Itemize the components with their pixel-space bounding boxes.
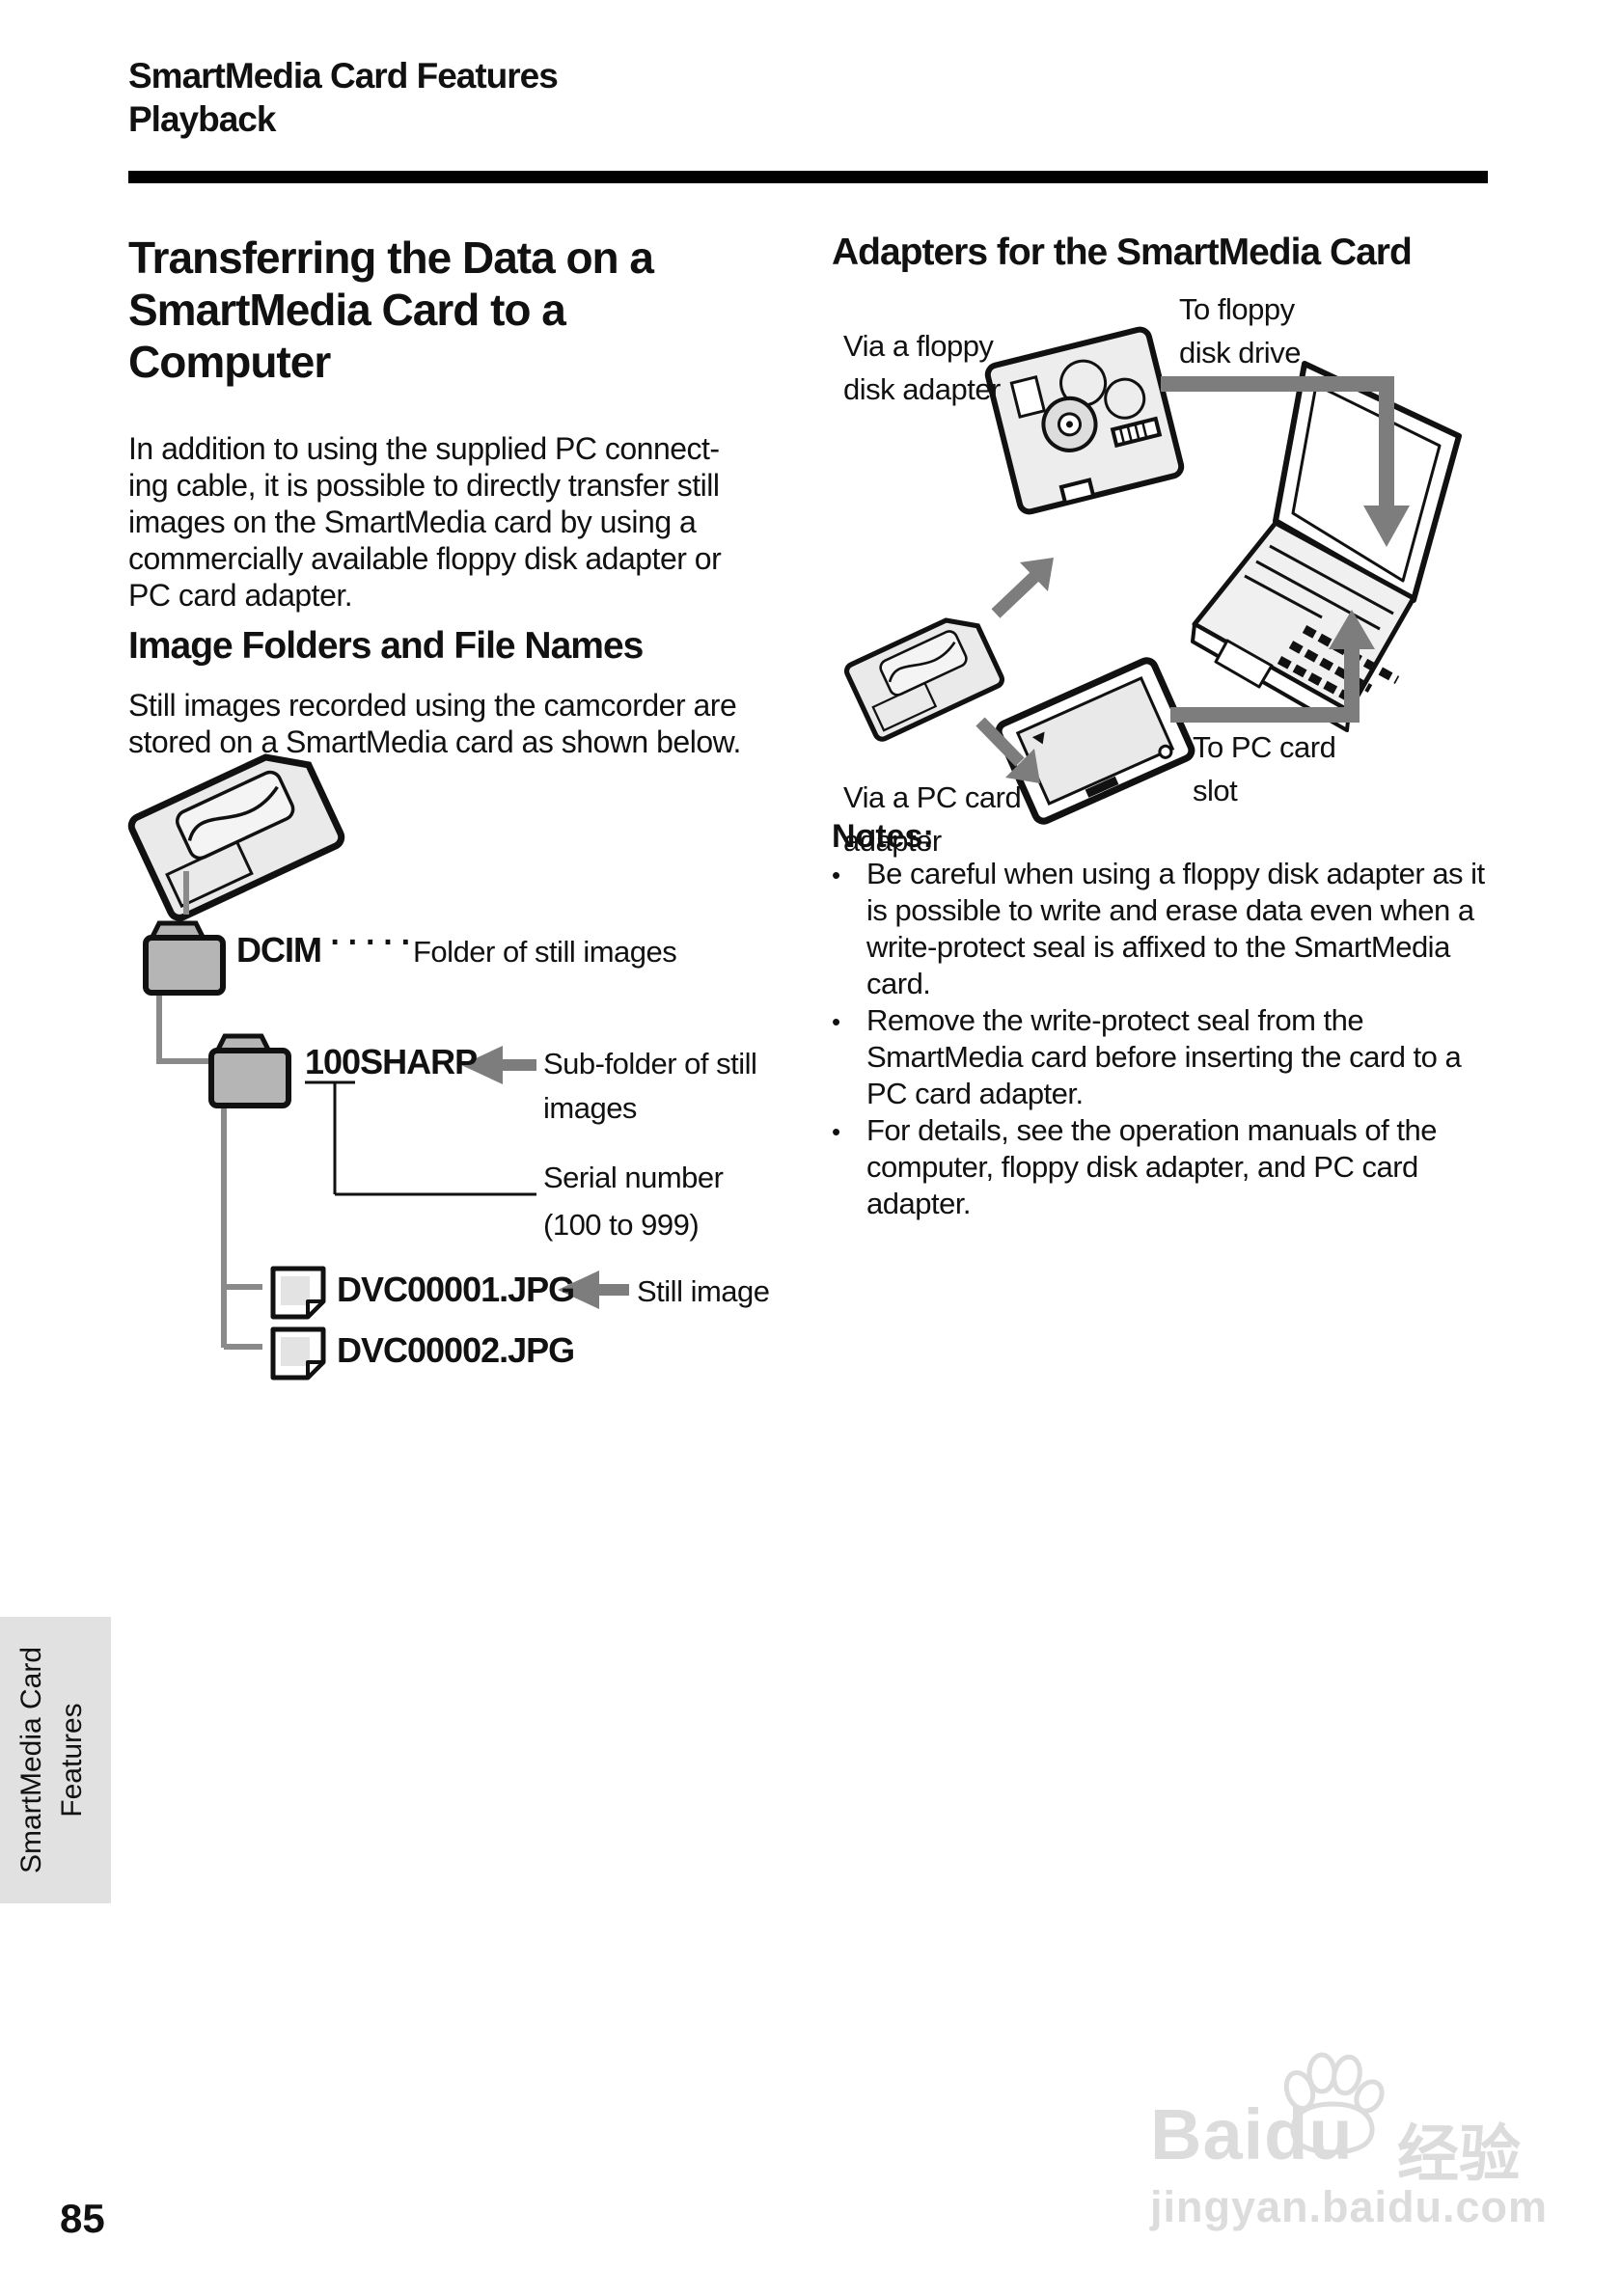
note-text: For details, see the operation manuals o… — [866, 1112, 1437, 1222]
manual-page: { "header": { "line1": "SmartMedia Card … — [0, 0, 1621, 2296]
pc-card-illustration — [996, 658, 1195, 824]
label-via-floppy: Via a floppy disk adapter — [843, 324, 1001, 411]
label-line: disk adapter — [843, 368, 1001, 411]
note-line: SmartMedia card before inserting the car… — [866, 1039, 1461, 1076]
paragraph-line: Still images recorded using the camcorde… — [128, 687, 741, 724]
paragraph-line: commercially available floppy disk adapt… — [128, 540, 721, 577]
section-heading-adapters: Adapters for the SmartMedia Card — [832, 232, 1412, 274]
header-line: Playback — [128, 97, 558, 141]
label-to-floppy: To floppy disk drive — [1179, 287, 1301, 374]
page-title-line: Computer — [128, 336, 653, 388]
note-line: For details, see the operation manuals o… — [866, 1112, 1437, 1149]
folder-label-100sharp: 100SHARP — [305, 1042, 477, 1082]
label-line: Via a PC card — [843, 776, 1021, 819]
note-line: Remove the write-protect seal from the — [866, 1002, 1461, 1039]
smartmedia-card-illustration — [128, 742, 344, 920]
paragraph-line: ing cable, it is possible to directly tr… — [128, 467, 721, 504]
paragraph-line: images on the SmartMedia card by using a — [128, 504, 721, 540]
note-line: Be careful when using a floppy disk adap… — [866, 856, 1485, 892]
label-line: To floppy — [1179, 287, 1301, 331]
annotation-line: (100 to 999) — [543, 1201, 723, 1248]
note-line: adapter. — [866, 1186, 1437, 1222]
note-line: computer, floppy disk adapter, and PC ca… — [866, 1149, 1437, 1186]
laptop-illustration — [1193, 364, 1459, 730]
header-line: SmartMedia Card Features — [128, 54, 558, 97]
bullet-icon: • — [832, 1002, 866, 1112]
label-to-pc: To PC card slot — [1193, 725, 1335, 812]
watermark-brand: Baidu — [1150, 2093, 1354, 2175]
intro-paragraph: In addition to using the supplied PC con… — [128, 430, 721, 614]
watermark-url: jingyan.baidu.com — [1150, 2182, 1548, 2232]
floppy-adapter-illustration — [986, 328, 1184, 514]
card-to-floppy-arrow — [996, 558, 1054, 614]
folder-label-dcim: DCIM — [236, 930, 321, 970]
sidebar-tab-text: SmartMedia Card Features — [0, 1617, 111, 1903]
note-text: Remove the write-protect seal from the S… — [866, 1002, 1461, 1112]
note-line: PC card adapter. — [866, 1076, 1461, 1112]
page-title: Transferring the Data on a SmartMedia Ca… — [128, 232, 653, 388]
watermark-brand-cn: 经验 — [1397, 2105, 1521, 2194]
file-label-1: DVC00001.JPG — [337, 1270, 574, 1310]
note-item: • Be careful when using a floppy disk ad… — [832, 856, 1507, 1002]
note-text: Be careful when using a floppy disk adap… — [866, 856, 1485, 1002]
annotation-line: images — [543, 1086, 756, 1131]
annotation-folder-of-still-images: Folder of still images — [413, 930, 676, 974]
bullet-icon: • — [832, 1112, 866, 1222]
file-icon — [273, 1329, 323, 1378]
file-icon — [273, 1269, 323, 1317]
folder-icon — [211, 1036, 288, 1106]
annotation-line: Serial number — [543, 1154, 723, 1201]
page-number: 85 — [60, 2196, 105, 2242]
sidebar-tab: SmartMedia Card Features — [0, 1617, 111, 1903]
note-line: card. — [866, 966, 1485, 1002]
label-line: disk drive — [1179, 331, 1301, 374]
page-title-line: Transferring the Data on a — [128, 232, 653, 284]
section-heading-image-folders: Image Folders and File Names — [128, 625, 643, 668]
page-header: SmartMedia Card Features Playback — [128, 54, 558, 141]
page-title-line: SmartMedia Card to a — [128, 284, 653, 336]
label-line: slot — [1193, 769, 1335, 812]
bullet-icon: • — [832, 856, 866, 1002]
annotation-serial-number: Serial number (100 to 999) — [543, 1154, 723, 1248]
note-item: • For details, see the operation manuals… — [832, 1112, 1507, 1222]
dotted-leader: ······ — [313, 924, 419, 962]
label-line: Via a floppy — [843, 324, 1001, 368]
note-line: is possible to write and erase data even… — [866, 892, 1485, 929]
serial-number-connector — [305, 1082, 536, 1194]
paragraph-line: stored on a SmartMedia card as shown bel… — [128, 724, 741, 760]
annotation-subfolder: Sub-folder of still images — [543, 1042, 756, 1131]
label-line: To PC card — [1193, 725, 1335, 769]
sidebar-tab-line: Features — [52, 1617, 93, 1903]
notes-section: Notes: • Be careful when using a floppy … — [832, 818, 1507, 1222]
note-line: write-protect seal is affixed to the Sma… — [866, 929, 1485, 966]
folder-icon — [146, 923, 223, 993]
paragraph-line: PC card adapter. — [128, 577, 721, 614]
annotation-still-image: Still image — [637, 1270, 770, 1314]
file-label-2: DVC00002.JPG — [337, 1330, 574, 1371]
folders-paragraph: Still images recorded using the camcorde… — [128, 687, 741, 760]
annotation-line: Sub-folder of still — [543, 1042, 756, 1086]
sidebar-tab-line: SmartMedia Card — [12, 1617, 52, 1903]
notes-heading: Notes: — [832, 818, 1507, 856]
note-item: • Remove the write-protect seal from the… — [832, 1002, 1507, 1112]
header-rule — [128, 171, 1488, 183]
paragraph-line: In addition to using the supplied PC con… — [128, 430, 721, 467]
